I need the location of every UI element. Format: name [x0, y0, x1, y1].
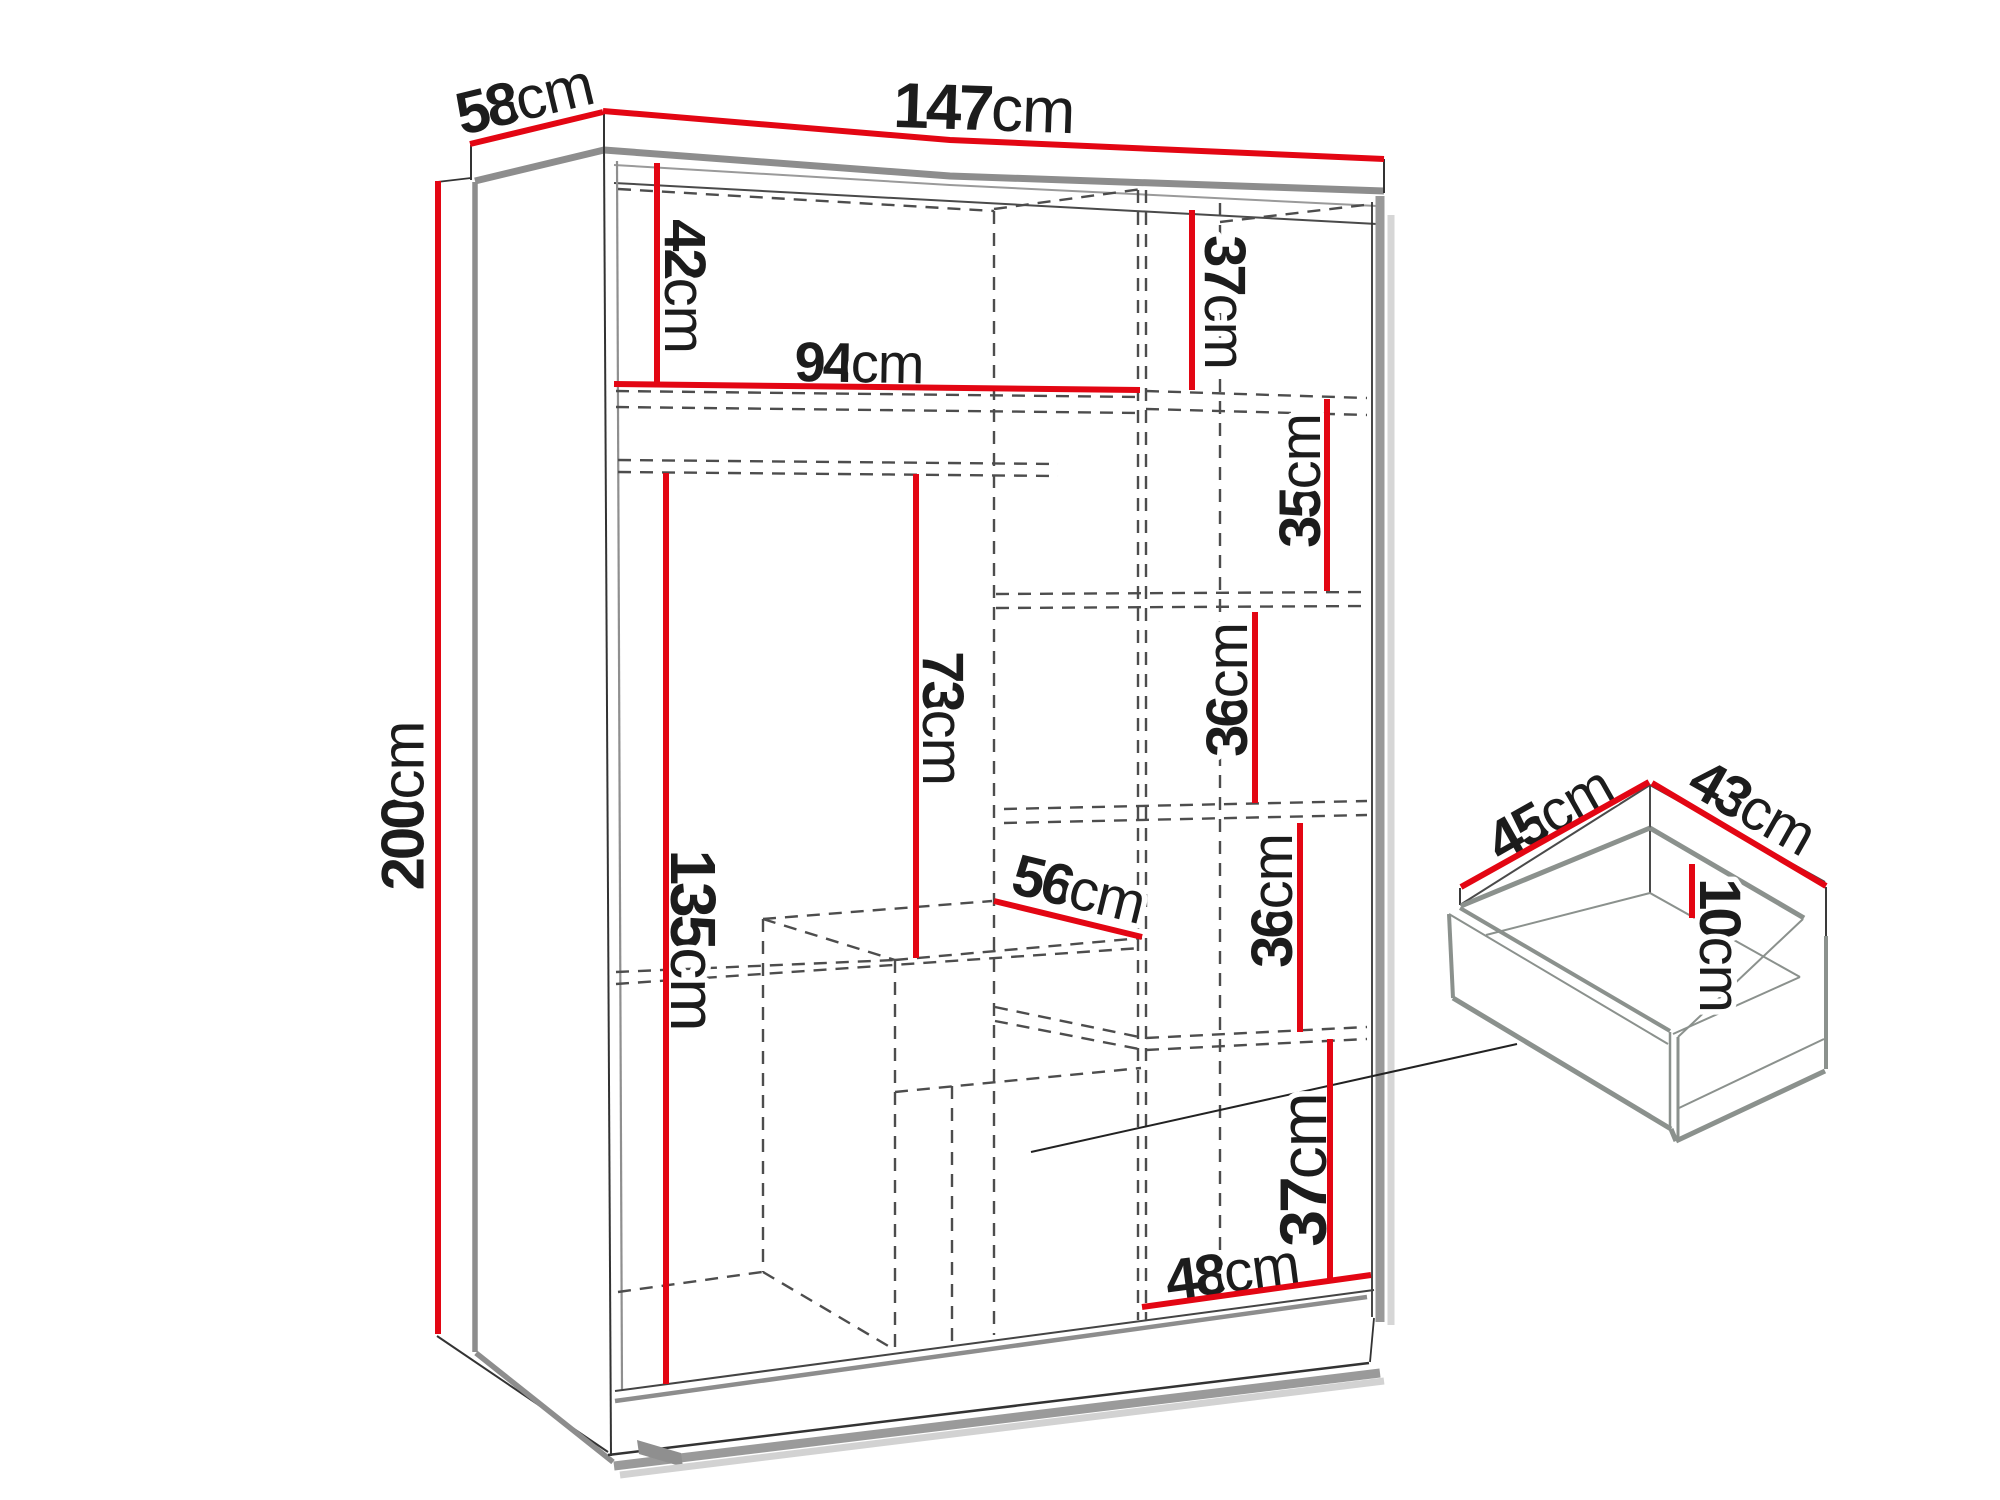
svg-text:35cm: 35cm: [1268, 414, 1333, 548]
svg-text:200cm: 200cm: [370, 721, 437, 890]
svg-text:37cm: 37cm: [1192, 235, 1257, 369]
svg-text:73cm: 73cm: [910, 651, 975, 785]
svg-text:42cm: 42cm: [652, 219, 717, 353]
svg-text:36cm: 36cm: [1195, 623, 1260, 757]
svg-text:36cm: 36cm: [1240, 834, 1305, 968]
svg-text:10cm: 10cm: [1687, 878, 1752, 1012]
